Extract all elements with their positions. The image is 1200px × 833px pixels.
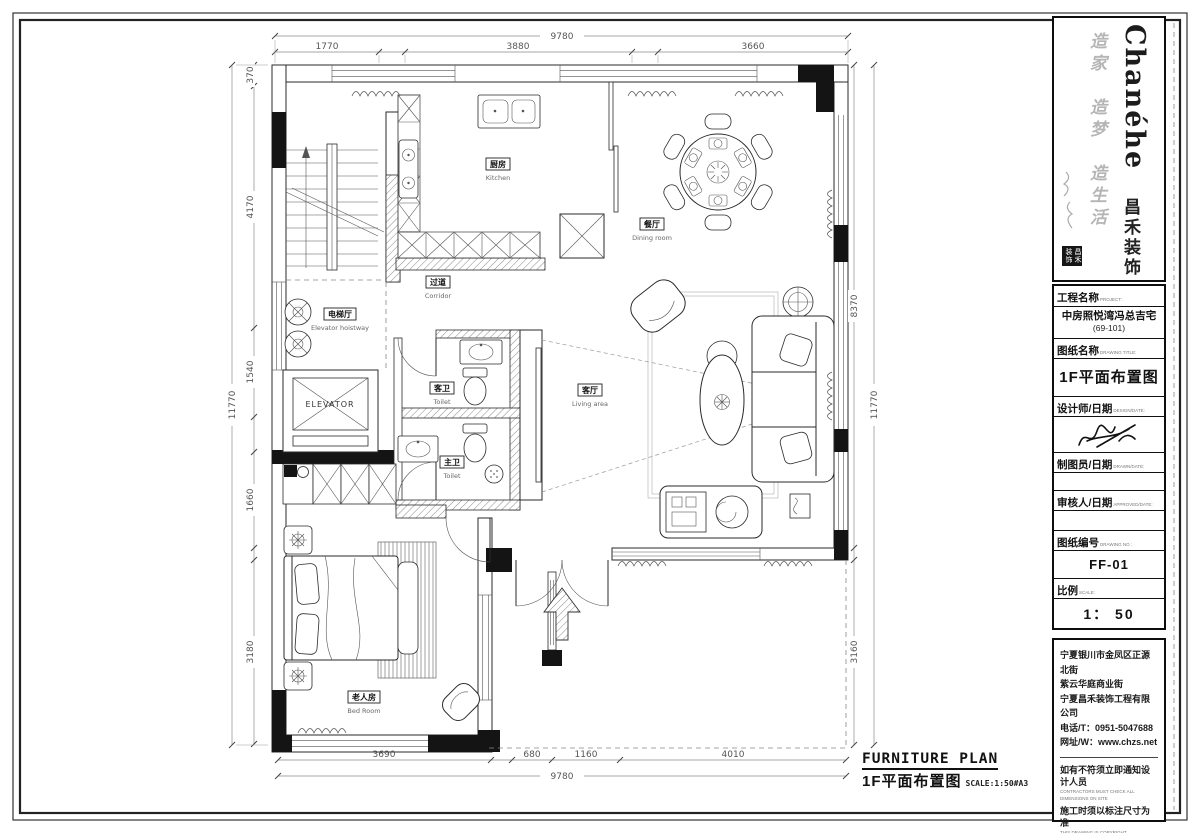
designer-signature (1054, 416, 1164, 452)
floor-plan-canvas: ELEVATOR (0, 0, 1200, 833)
svg-text:Dining room: Dining room (632, 234, 672, 242)
footer-title-en: FURNITURE PLAN (862, 751, 998, 770)
svg-text:9780: 9780 (551, 772, 574, 782)
field-label-drawing-title: 图纸名称DRAWING TITLE: (1054, 338, 1164, 358)
divider (1060, 757, 1158, 758)
footer-scale-note: SCALE:1:50#A3 (966, 779, 1029, 788)
company-seal: 昌禾装饰 (1062, 246, 1082, 266)
svg-text:Bed Room: Bed Room (347, 707, 380, 715)
plant-icon (285, 331, 311, 357)
plant-icon (285, 299, 311, 325)
sheet-border (13, 13, 1187, 820)
elevator: ELEVATOR (283, 370, 378, 452)
svg-text:3180: 3180 (246, 640, 256, 663)
field-value-approver (1054, 510, 1164, 530)
room-label-elevator-hall: 电梯厅 Elevator hoistway (311, 308, 369, 332)
svg-text:370: 370 (246, 66, 256, 83)
field-value-drafter (1054, 472, 1164, 490)
field-label-drafter: 制图员/日期DRAWN/DATE: (1054, 452, 1164, 472)
sink-icon (478, 95, 540, 128)
field-value-project: 中房照悦湾冯总吉宅 (69-101) (1054, 306, 1164, 338)
vanity-icon (460, 340, 502, 364)
svg-text:过道: 过道 (430, 277, 446, 287)
field-value-drawing-no: FF-01 (1054, 550, 1164, 578)
dining-set (661, 114, 774, 230)
staircase (286, 144, 384, 270)
svg-text:老人房: 老人房 (351, 692, 376, 702)
room-label-bedroom: 老人房 Bed Room (347, 691, 380, 715)
svg-text:Corridor: Corridor (425, 292, 452, 300)
cooktop-icon (399, 140, 418, 198)
room-label-toilet-guest: 客卫 Toilet (430, 382, 454, 406)
room-label-dining: 餐厅 Dining room (632, 218, 672, 242)
armchair-icon (625, 274, 691, 338)
svg-text:主卫: 主卫 (444, 457, 460, 467)
vanity-icon (398, 436, 438, 462)
company-name: 宁夏昌禾装饰工程有限公司 (1060, 692, 1158, 721)
field-label-designer: 设计师/日期DESIGN/DATE: (1054, 396, 1164, 416)
logo-block: Chanéhe 昌禾装饰 造家 造梦 造生活 昌禾装饰 (1052, 16, 1166, 282)
svg-text:680: 680 (523, 750, 540, 760)
company-address-2: 紫云华庭商业街 (1060, 677, 1158, 692)
svg-text:Toilet: Toilet (442, 472, 460, 480)
fridge-icon (560, 214, 604, 258)
bedroom-armchair-icon (438, 679, 483, 724)
field-label-scale: 比例SCALE: (1054, 578, 1164, 598)
svg-text:Kitchen: Kitchen (486, 174, 510, 182)
brand-slogan: 造家 造梦 造生活 (1084, 32, 1109, 230)
dimension-chain-right: 8370 3160 11770 (848, 62, 880, 748)
room-label-toilet-master: 主卫 Toilet (440, 456, 464, 480)
note-2-zh: 施工时须以标注尺寸为准 (1060, 805, 1158, 829)
svg-text:餐厅: 餐厅 (643, 219, 660, 229)
room-label-corridor: 过道 Corridor (425, 276, 452, 300)
svg-text:Elevator hoistway: Elevator hoistway (311, 324, 369, 332)
calligraphy-mark (1062, 168, 1076, 238)
bench-icon (398, 562, 418, 654)
svg-text:4010: 4010 (722, 750, 745, 760)
svg-text:客卫: 客卫 (433, 383, 450, 393)
elevator-hall (285, 299, 311, 357)
room-label-living: 客厅 Living area (572, 384, 608, 408)
wardrobe-cabinets (283, 464, 396, 504)
dimension-chain-left: 370 4170 1540 1660 3180 11770 (226, 62, 268, 748)
svg-text:1770: 1770 (316, 42, 339, 52)
svg-text:3880: 3880 (507, 42, 530, 52)
note-1-en: CONTRACTORS MUST CHECK ALL DIMENSIONS ON… (1060, 788, 1158, 802)
field-label-project: 工程名称PROJECT: (1054, 286, 1164, 306)
toilet-guest-room (398, 338, 502, 405)
coffee-table-icon (700, 341, 744, 445)
dimension-chain-bottom: 3690 680 1160 4010 9780 (275, 750, 849, 782)
nightstand-icon (284, 662, 312, 690)
svg-text:3660: 3660 (742, 42, 765, 52)
company-info-block: 宁夏银川市金凤区正源北街 紫云华庭商业街 宁夏昌禾装饰工程有限公司 电话/T：0… (1052, 638, 1166, 822)
svg-text:4170: 4170 (246, 195, 256, 218)
bed-icon (284, 556, 398, 660)
footer-title-zh: 1F平面布置图 (862, 770, 962, 791)
svg-text:9780: 9780 (551, 32, 574, 42)
toilet-icon (463, 424, 487, 462)
svg-text:厨房: 厨房 (490, 159, 506, 169)
svg-text:11770: 11770 (870, 390, 880, 419)
svg-text:Toilet: Toilet (432, 398, 450, 406)
wall-unit-icon (790, 494, 810, 518)
company-address-1: 宁夏银川市金凤区正源北街 (1060, 648, 1158, 677)
drawing-footer: FURNITURE PLAN 1F平面布置图 SCALE:1:50#A3 (862, 750, 1052, 791)
dimension-chain-top: 9780 1770 3880 3660 (272, 31, 851, 63)
field-value-scale: 1： 50 (1054, 598, 1164, 627)
title-block: 工程名称PROJECT: 中房照悦湾冯总吉宅 (69-101) 图纸名称DRAW… (1052, 284, 1166, 630)
svg-text:1660: 1660 (246, 488, 256, 511)
svg-text:11770: 11770 (228, 390, 238, 419)
field-value-drawing-title: 1F平面布置图 (1054, 358, 1164, 396)
company-phone: 电话/T：0951-5047688 (1060, 721, 1158, 736)
shower-drain-icon (485, 465, 503, 483)
svg-text:8370: 8370 (850, 294, 860, 317)
svg-text:1540: 1540 (246, 360, 256, 383)
living-room (520, 274, 834, 538)
sofa-icon (752, 316, 834, 482)
ceiling-fan-icon (783, 287, 813, 317)
svg-text:3690: 3690 (373, 750, 396, 760)
svg-text:Living area: Living area (572, 400, 608, 408)
note-2-en: THIS DRAWING IS COPYRIGHT (1060, 829, 1158, 833)
drawing-sheet: ELEVATOR (0, 0, 1200, 833)
svg-text:电梯厅: 电梯厅 (328, 309, 352, 319)
side-cabinet-icon (660, 486, 762, 538)
room-label-kitchen: 厨房 Kitchen (486, 158, 510, 182)
field-label-approver: 审核人/日期APPROVED/DATE: (1054, 490, 1164, 510)
elevator-label: ELEVATOR (305, 400, 354, 409)
company-website: 网址/W：www.chzs.net (1060, 735, 1158, 750)
nightstand-icon (284, 526, 312, 554)
bedroom (284, 518, 490, 725)
svg-text:1160: 1160 (575, 750, 598, 760)
brand-logotype: Chanéhe (1119, 24, 1150, 170)
brand-name-chinese: 昌禾装饰 (1118, 198, 1143, 278)
field-label-drawing-no: 图纸编号DRAWING NO : (1054, 530, 1164, 550)
toilet-icon (463, 368, 487, 405)
svg-text:3160: 3160 (850, 640, 860, 663)
note-1-zh: 如有不符须立即通知设计人员 (1060, 764, 1158, 788)
svg-text:客厅: 客厅 (581, 385, 598, 395)
tv-cabinet-icon (520, 330, 542, 500)
